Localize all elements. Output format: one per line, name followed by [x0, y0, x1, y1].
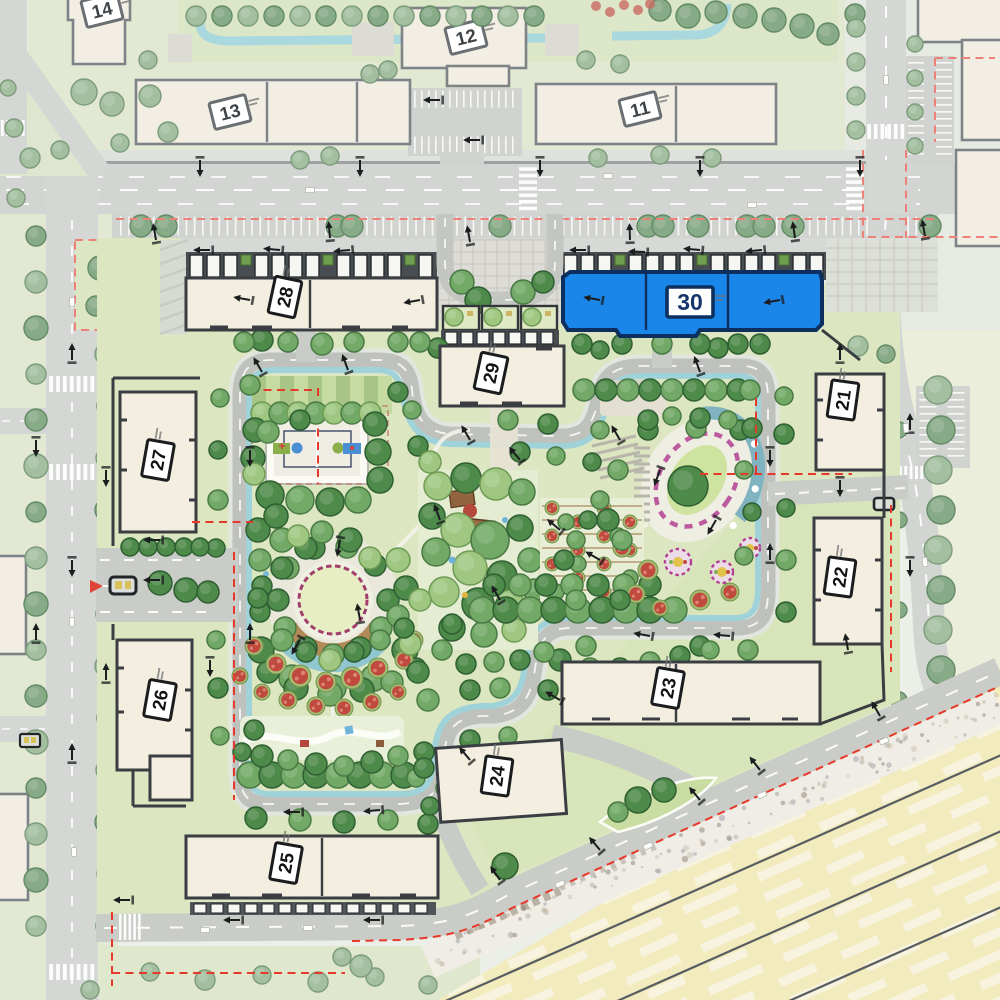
svg-text:24: 24 — [485, 764, 509, 788]
svg-text:30: 30 — [677, 289, 703, 315]
svg-text:29: 29 — [479, 361, 504, 385]
svg-text:22: 22 — [828, 565, 852, 588]
svg-text:28: 28 — [273, 285, 298, 309]
svg-text:23: 23 — [656, 676, 680, 700]
svg-text:26: 26 — [148, 688, 172, 712]
svg-text:21: 21 — [831, 388, 855, 411]
svg-text:25: 25 — [274, 851, 298, 875]
svg-text:27: 27 — [146, 448, 170, 472]
